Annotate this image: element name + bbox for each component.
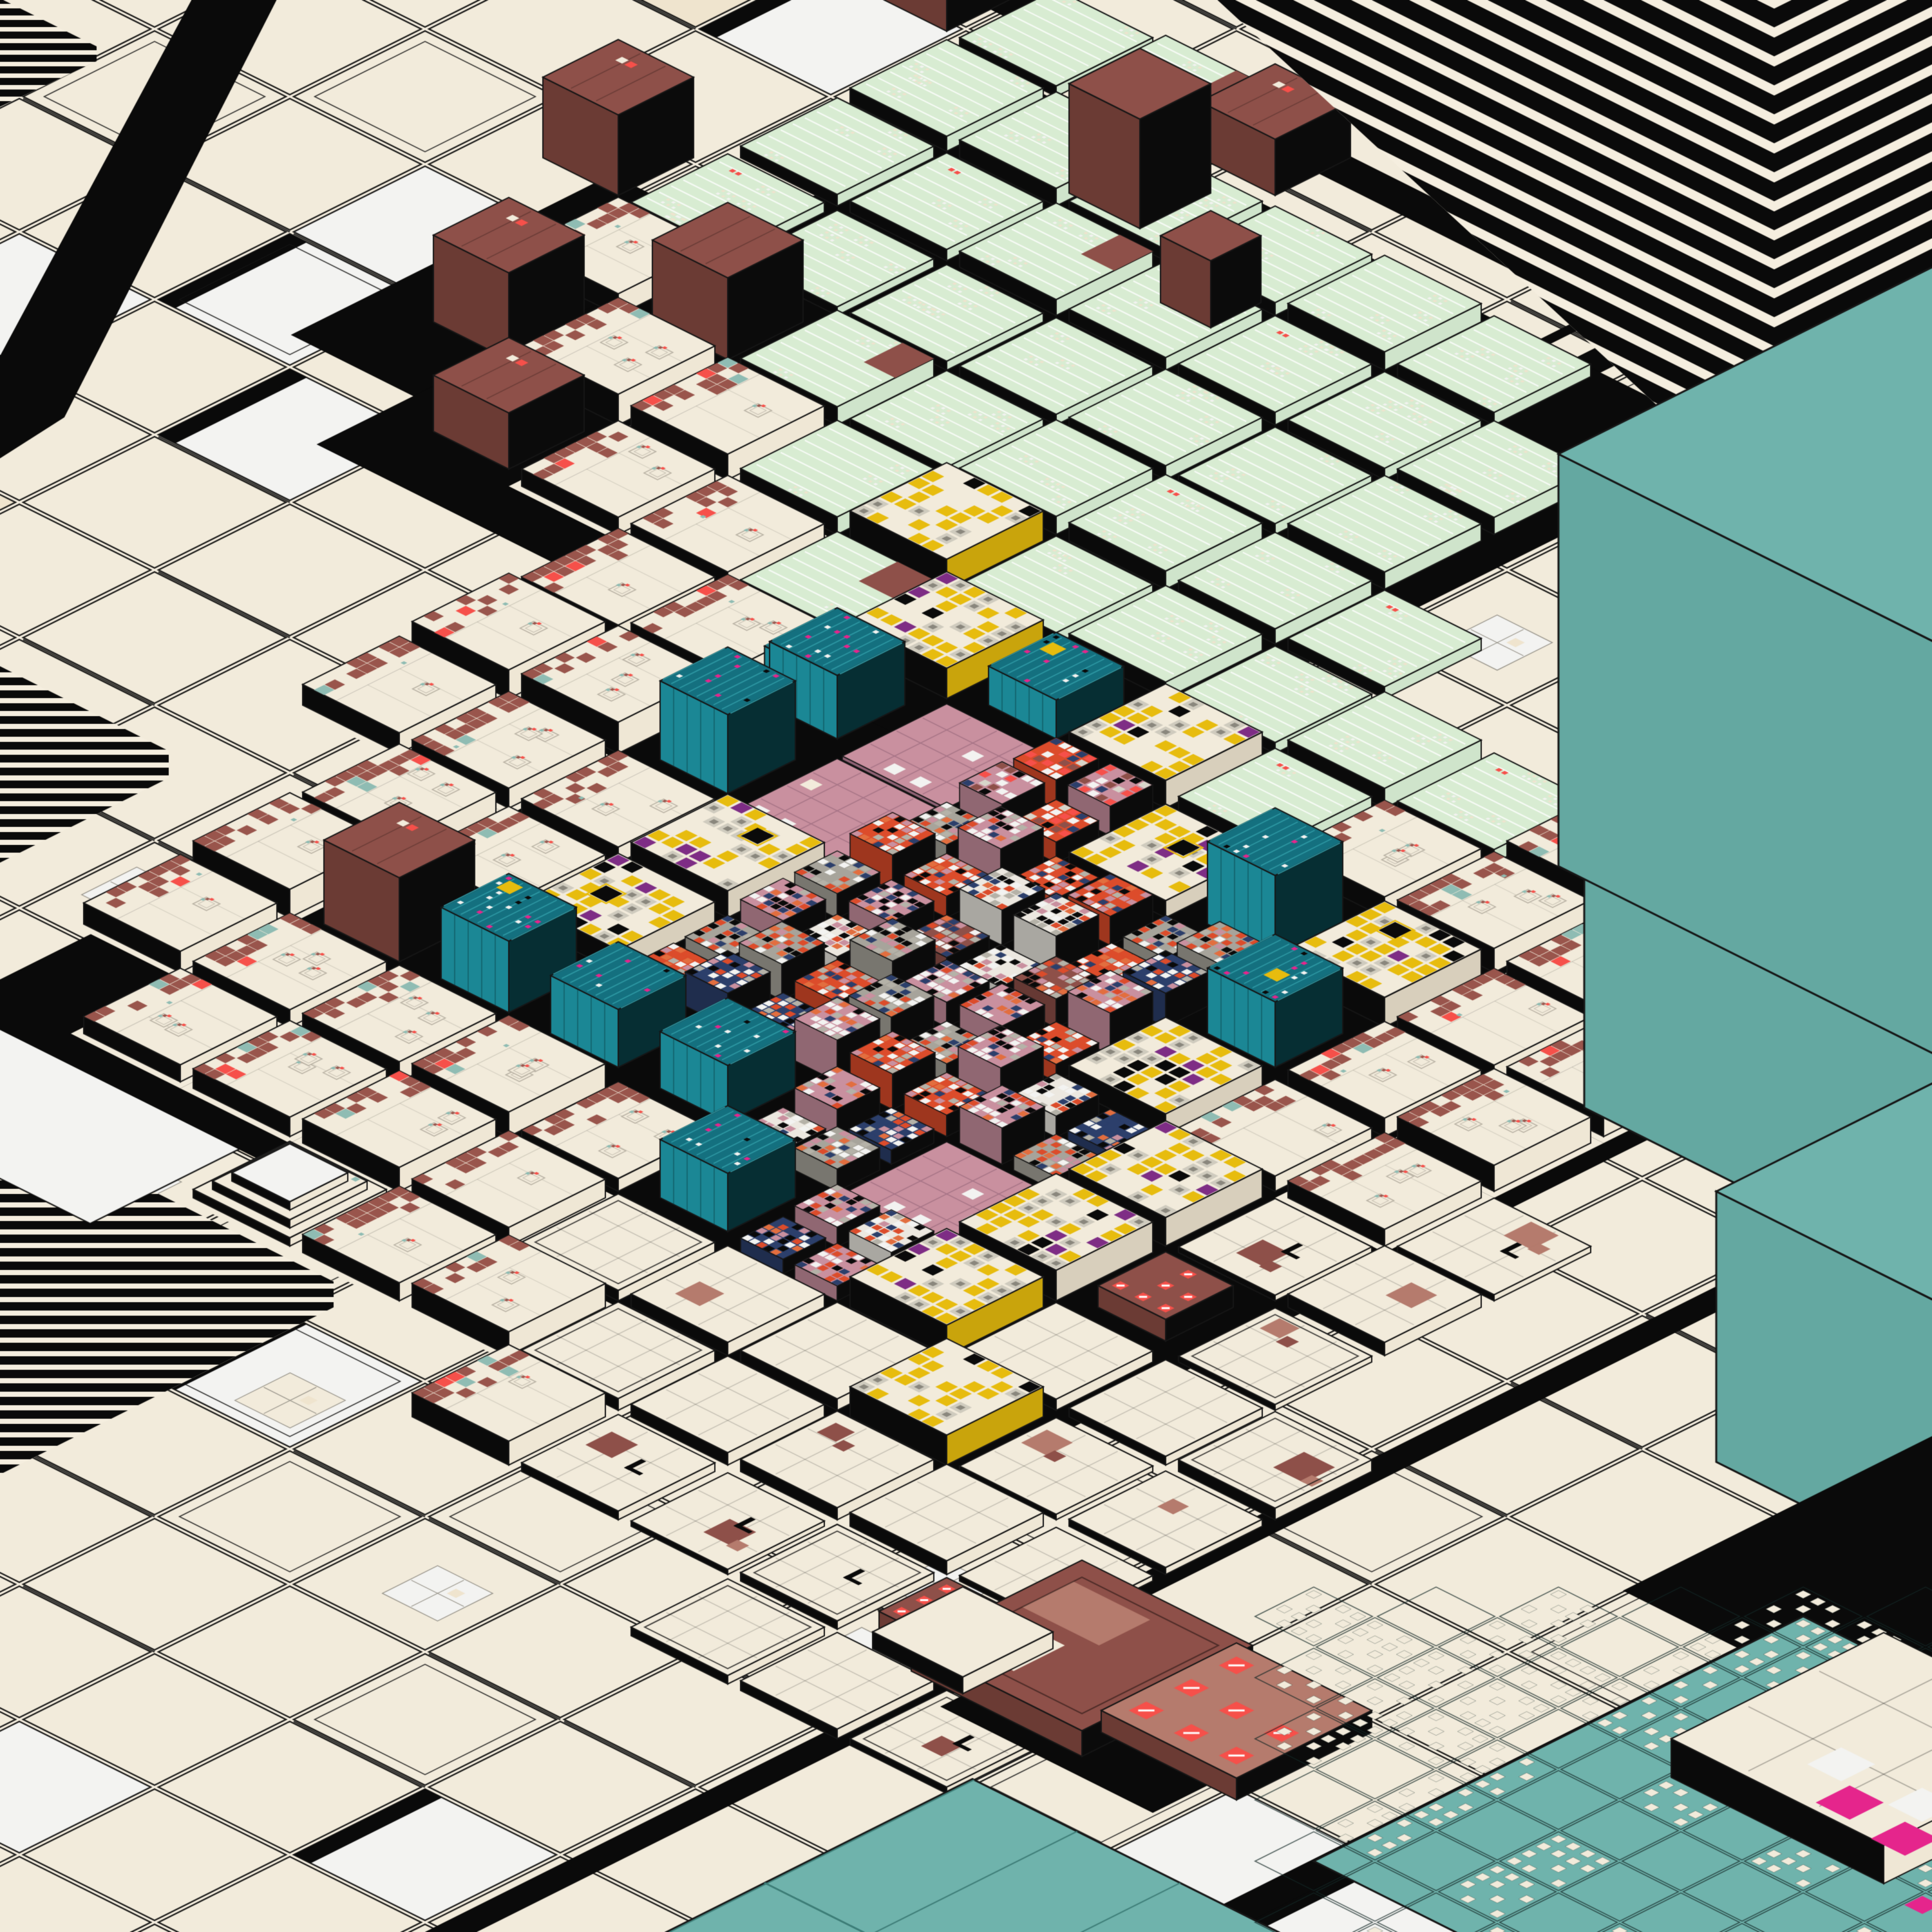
isometric-artwork (0, 0, 1932, 1932)
artwork-canvas (0, 0, 1932, 1932)
